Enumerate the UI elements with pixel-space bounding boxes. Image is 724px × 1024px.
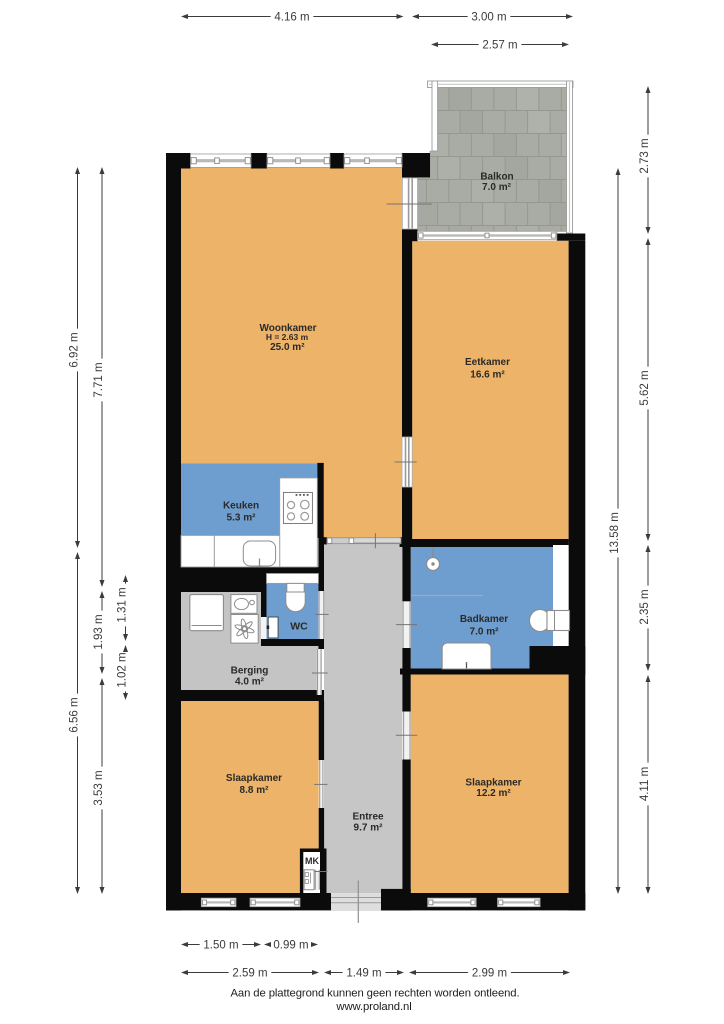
svg-text:5.3 m²: 5.3 m²: [227, 513, 257, 524]
svg-text:2.35 m: 2.35 m: [639, 589, 651, 624]
svg-text:1.31 m: 1.31 m: [117, 587, 129, 622]
svg-text:6.92 m: 6.92 m: [69, 332, 81, 367]
svg-text:MK: MK: [305, 856, 319, 866]
svg-text:4.11 m: 4.11 m: [639, 767, 651, 801]
svg-text:3.00 m: 3.00 m: [471, 12, 506, 24]
svg-text:H = 2.63 m: H = 2.63 m: [266, 332, 309, 342]
svg-text:3.53 m: 3.53 m: [93, 770, 105, 805]
svg-text:4.0 m²: 4.0 m²: [235, 677, 265, 688]
svg-text:1.50 m: 1.50 m: [203, 940, 238, 952]
svg-text:2.59 m: 2.59 m: [232, 968, 267, 980]
svg-text:0.99 m: 0.99 m: [273, 940, 308, 952]
svg-text:13.58 m: 13.58 m: [609, 512, 621, 554]
svg-text:Badkamer: Badkamer: [460, 614, 508, 625]
svg-text:2.57 m: 2.57 m: [482, 40, 517, 52]
svg-text:6.56 m: 6.56 m: [69, 697, 81, 732]
svg-text:4.16 m: 4.16 m: [274, 12, 309, 24]
svg-text:Slaapkamer: Slaapkamer: [226, 773, 282, 784]
svg-text:5.62 m: 5.62 m: [639, 370, 651, 405]
svg-text:7.0 m²: 7.0 m²: [482, 182, 512, 193]
svg-text:Berging: Berging: [231, 666, 269, 677]
svg-text:1.02 m: 1.02 m: [117, 652, 129, 687]
svg-text:1.93 m: 1.93 m: [93, 614, 105, 649]
svg-text:7.71 m: 7.71 m: [93, 362, 105, 397]
svg-text:Keuken: Keuken: [223, 501, 259, 512]
svg-text:Aan de plattegrond kunnen geen: Aan de plattegrond kunnen geen rechten w…: [230, 988, 519, 1000]
svg-text:8.8 m²: 8.8 m²: [240, 785, 270, 796]
svg-text:16.6 m²: 16.6 m²: [470, 370, 505, 381]
svg-text:Balkon: Balkon: [480, 172, 513, 183]
svg-text:www.proland.nl: www.proland.nl: [335, 1001, 411, 1013]
svg-text:1.49 m: 1.49 m: [346, 968, 381, 980]
svg-text:Eetkamer: Eetkamer: [465, 357, 510, 368]
svg-text:Entree: Entree: [352, 812, 384, 823]
svg-text:9.7 m²: 9.7 m²: [354, 823, 384, 834]
svg-text:12.2 m²: 12.2 m²: [476, 788, 511, 799]
svg-text:Slaapkamer: Slaapkamer: [465, 778, 521, 789]
svg-text:25.0 m²: 25.0 m²: [270, 342, 305, 353]
svg-text:7.0 m²: 7.0 m²: [470, 627, 500, 638]
svg-text:2.99 m: 2.99 m: [472, 968, 507, 980]
svg-text:WC: WC: [290, 621, 308, 633]
svg-text:2.73 m: 2.73 m: [639, 138, 651, 173]
